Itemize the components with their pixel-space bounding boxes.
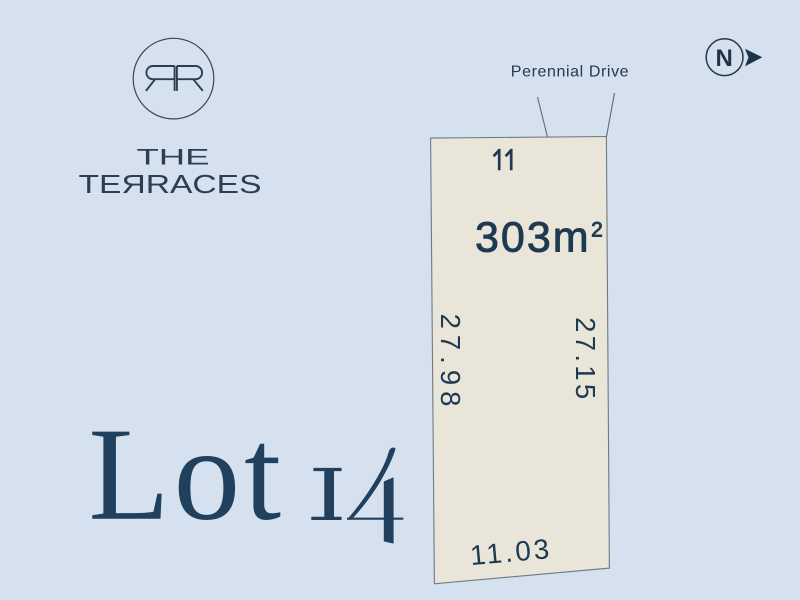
svg-text:N: N	[716, 45, 733, 72]
svg-text:THE: THE	[137, 145, 210, 170]
svg-text:Perennial Drive: Perennial Drive	[511, 64, 629, 81]
svg-text:TEЯRACES: TEЯRACES	[79, 169, 262, 199]
svg-text:303m2: 303m2	[475, 214, 605, 262]
svg-text:Lot: Lot	[88, 400, 285, 548]
svg-text:27.98: 27.98	[435, 314, 466, 413]
svg-text:27.15: 27.15	[570, 317, 601, 402]
